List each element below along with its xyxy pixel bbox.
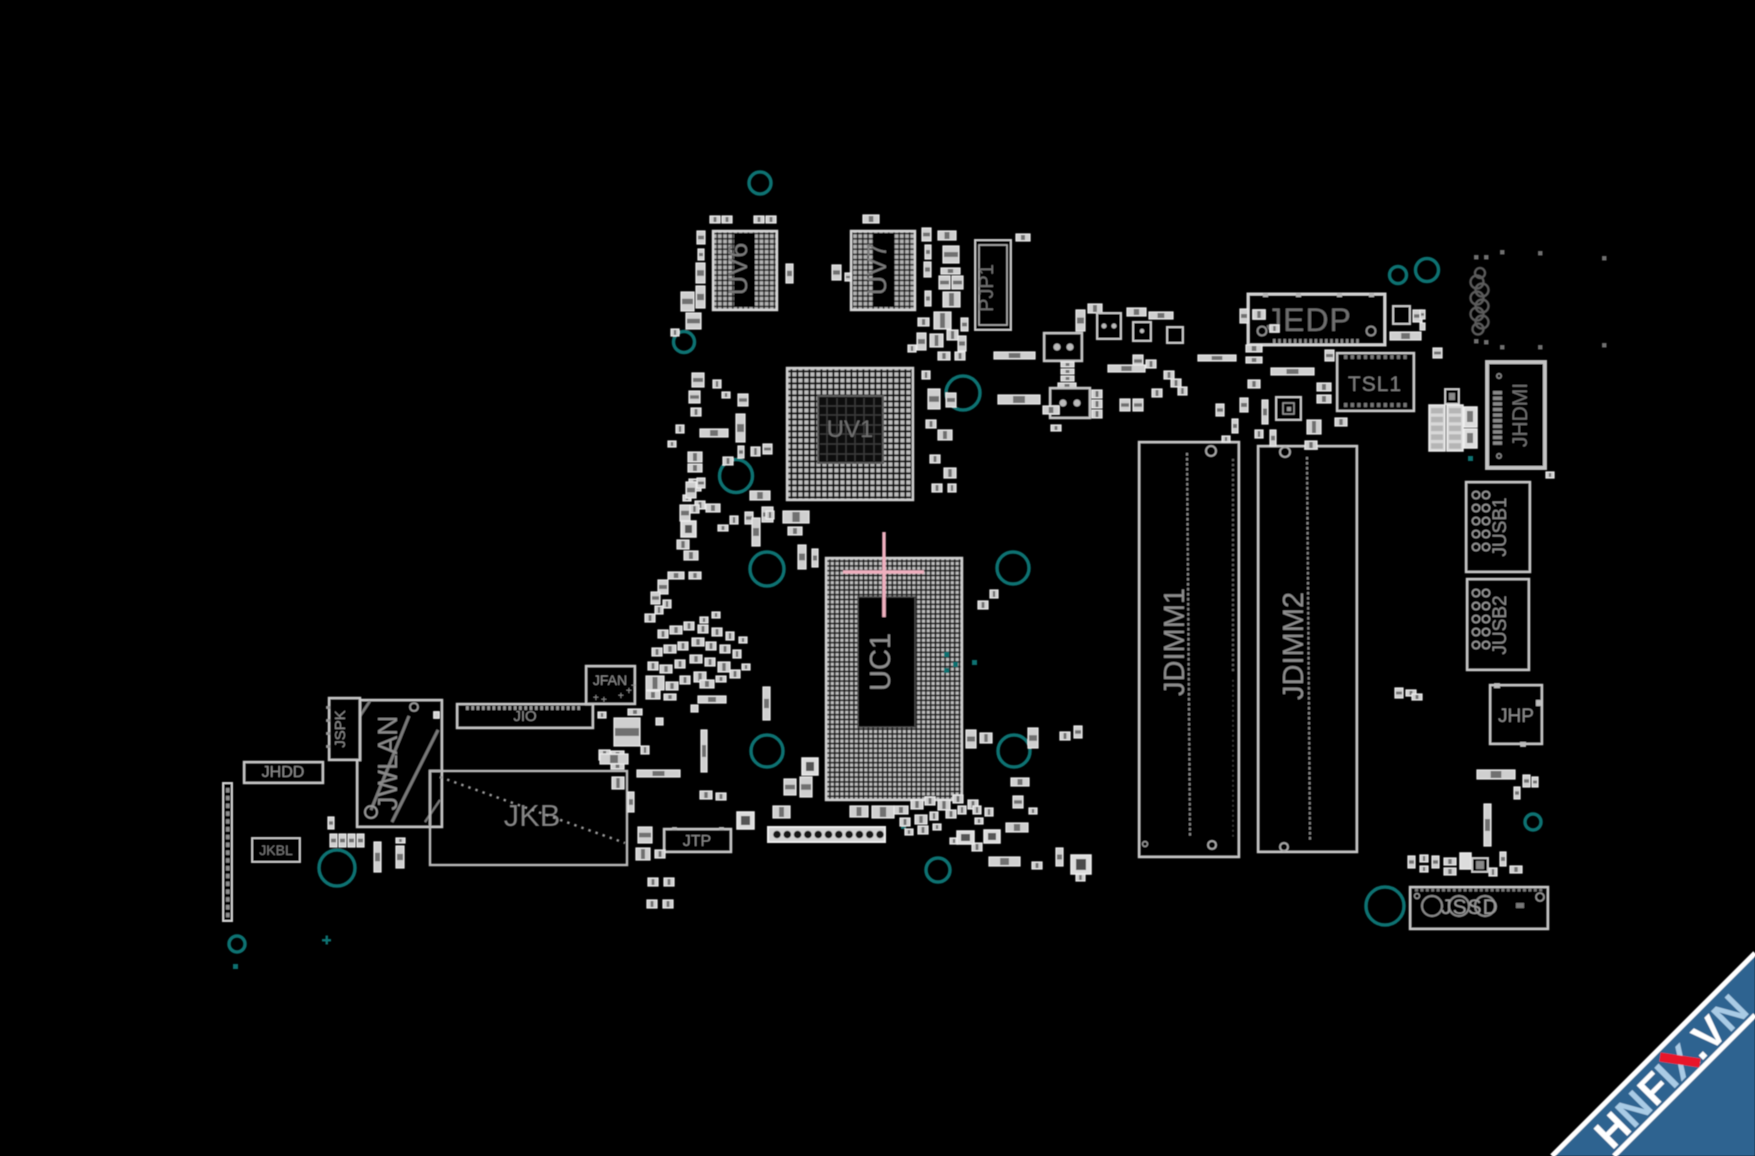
svg-text:+: + xyxy=(631,681,637,692)
svg-text:UV7: UV7 xyxy=(862,243,892,296)
svg-text:JHDMI: JHDMI xyxy=(1509,383,1532,447)
svg-text:+: + xyxy=(618,691,624,702)
svg-text:JDIMM2: JDIMM2 xyxy=(1278,592,1310,700)
svg-text:JIO: JIO xyxy=(513,708,536,725)
svg-text:JSSD: JSSD xyxy=(1441,896,1499,919)
svg-text:JSPK: JSPK xyxy=(332,710,349,748)
svg-text:JEDP: JEDP xyxy=(1266,302,1352,338)
svg-text:PJP1: PJP1 xyxy=(976,264,998,312)
svg-text:JWLAN: JWLAN xyxy=(372,716,403,811)
svg-text:JTP: JTP xyxy=(683,833,711,850)
svg-text:+: + xyxy=(593,693,599,704)
svg-text:+: + xyxy=(601,695,607,706)
svg-text:JHP: JHP xyxy=(1498,706,1534,727)
svg-text:JHDD: JHDD xyxy=(262,764,305,781)
svg-text:UV6: UV6 xyxy=(723,243,753,296)
svg-text:JFAN: JFAN xyxy=(593,672,627,688)
svg-text:JUSB1: JUSB1 xyxy=(1490,497,1511,556)
svg-text:JUSB2: JUSB2 xyxy=(1490,595,1511,654)
svg-text:JKBL: JKBL xyxy=(259,842,293,858)
svg-text:UV1: UV1 xyxy=(827,416,874,443)
svg-text:TSL1: TSL1 xyxy=(1348,373,1402,396)
svg-text:JDIMM1: JDIMM1 xyxy=(1159,588,1191,696)
svg-text:UC1: UC1 xyxy=(865,633,897,691)
